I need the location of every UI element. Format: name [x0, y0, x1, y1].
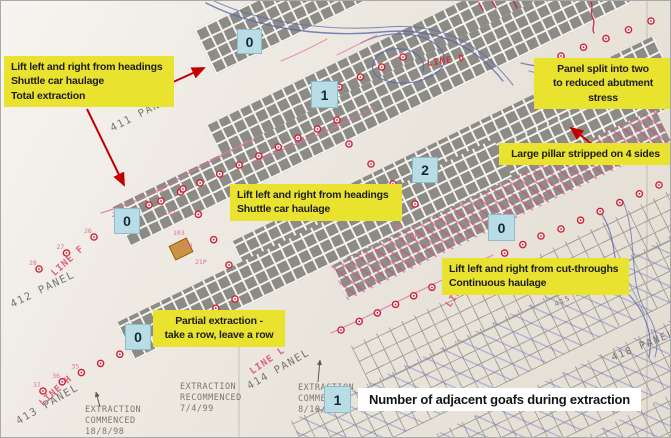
survey-point	[338, 327, 344, 333]
goaf-count-badge: 2	[412, 157, 438, 183]
callout-line: take a row, leave a row	[160, 328, 278, 342]
survey-point	[379, 64, 385, 70]
survey-number-label: 103	[173, 229, 185, 237]
survey-point	[211, 237, 217, 243]
callout-panel-split: Panel split into twoto reduced abutment …	[534, 58, 671, 109]
survey-point	[98, 360, 104, 366]
callout-line: Continuous haulage	[449, 276, 622, 290]
callout-line: Lift left and right from headings	[11, 60, 167, 74]
survey-point	[538, 233, 544, 239]
survey-point-number: 35	[71, 363, 79, 371]
survey-point	[656, 182, 662, 188]
callout-line: Total extraction	[11, 89, 167, 103]
survey-point	[648, 18, 654, 24]
survey-point	[411, 293, 417, 299]
callout-large-pillar: Large pillar stripped on 4 sides	[499, 143, 671, 165]
extraction-note: EXTRACTION RECOMMENCED 7/4/99	[180, 382, 242, 415]
survey-number-label: 9K	[395, 223, 403, 231]
survey-number-label: 21P	[195, 258, 207, 266]
survey-number-label: 102	[164, 209, 176, 217]
survey-point	[256, 153, 262, 159]
legend-caption: Number of adjacent goafs during extracti…	[358, 388, 641, 411]
survey-point	[412, 201, 418, 207]
survey-point	[180, 186, 186, 192]
extraction-note: EXTRACTION COMMENCED 18/8/98	[85, 405, 141, 438]
survey-point	[356, 318, 362, 324]
survey-point	[226, 262, 232, 268]
goaf-count-badge: 0	[488, 214, 515, 241]
goaf-count-badge: 0	[125, 324, 151, 350]
map-arrow	[318, 360, 320, 382]
goaf-count-badge: 0	[114, 208, 140, 234]
legend-goaf-badge: 1	[324, 386, 351, 413]
survey-point	[158, 198, 164, 204]
callout-headings-total: Lift left and right from headingsShuttle…	[4, 56, 174, 107]
survey-point: 37	[33, 381, 46, 394]
survey-number-label: 10K	[407, 232, 419, 240]
survey-point	[520, 241, 526, 247]
red-arrow	[171, 68, 204, 83]
survey-point	[578, 217, 584, 223]
callout-line: Shuttle car haulage	[237, 202, 395, 216]
goaf-count-badge: 0	[237, 29, 262, 54]
survey-point: 35	[71, 363, 84, 376]
survey-point	[197, 180, 203, 186]
survey-point	[195, 211, 201, 217]
survey-point	[558, 226, 564, 232]
survey-point	[217, 171, 223, 177]
survey-point	[346, 141, 352, 147]
survey-point-number: 36	[52, 372, 60, 380]
survey-point	[429, 284, 435, 290]
survey-point	[232, 296, 238, 302]
callout-line: Lift left and right from headings	[237, 188, 395, 202]
survey-point	[117, 351, 123, 357]
callout-line: Panel split into two	[541, 62, 665, 76]
callout-line: Partial extraction -	[160, 314, 278, 328]
annotated-mine-plan-figure: 28272625373635 411 PANEL412 PANEL413 PAN…	[0, 0, 671, 438]
survey-point	[357, 74, 363, 80]
callout-line: Large pillar stripped on 4 sides	[506, 147, 665, 161]
survey-point-number: 37	[33, 381, 41, 389]
survey-point	[636, 191, 642, 197]
survey-point	[625, 27, 631, 33]
survey-number-label: 7A	[156, 187, 164, 195]
survey-point	[368, 161, 374, 167]
survey-point	[374, 310, 380, 316]
survey-point	[502, 250, 508, 256]
survey-number-label: 20J	[181, 242, 193, 250]
survey-point: 26	[84, 227, 97, 240]
survey-point	[146, 202, 152, 208]
goaf-count-badge: 1	[311, 81, 338, 108]
survey-point-number: 27	[57, 243, 65, 251]
survey-point	[295, 135, 301, 141]
survey-point	[400, 54, 406, 60]
survey-point-number: 28	[29, 259, 37, 267]
callout-cut-throughs: Lift left and right from cut-throughsCon…	[442, 258, 629, 295]
survey-point	[236, 162, 242, 168]
survey-point	[275, 144, 281, 150]
survey-point	[617, 200, 623, 206]
callout-line: to reduced abutment stress	[541, 76, 665, 105]
callout-line: Shuttle car haulage	[11, 74, 167, 88]
red-arrow	[571, 128, 592, 144]
callout-partial-extraction: Partial extraction -take a row, leave a …	[153, 310, 285, 347]
callout-line: Lift left and right from cut-throughs	[449, 262, 622, 276]
survey-point	[603, 35, 609, 41]
survey-point	[597, 208, 603, 214]
survey-point	[314, 126, 320, 132]
survey-point: 28	[29, 259, 42, 272]
survey-point	[392, 301, 398, 307]
survey-point-number: 26	[84, 227, 92, 235]
callout-headings-shuttle: Lift left and right from headingsShuttle…	[230, 184, 402, 221]
survey-point	[334, 117, 340, 123]
survey-point	[580, 44, 586, 50]
services-lines-decoration	[101, 1, 671, 357]
legend: 1 Number of adjacent goafs during extrac…	[324, 386, 641, 413]
